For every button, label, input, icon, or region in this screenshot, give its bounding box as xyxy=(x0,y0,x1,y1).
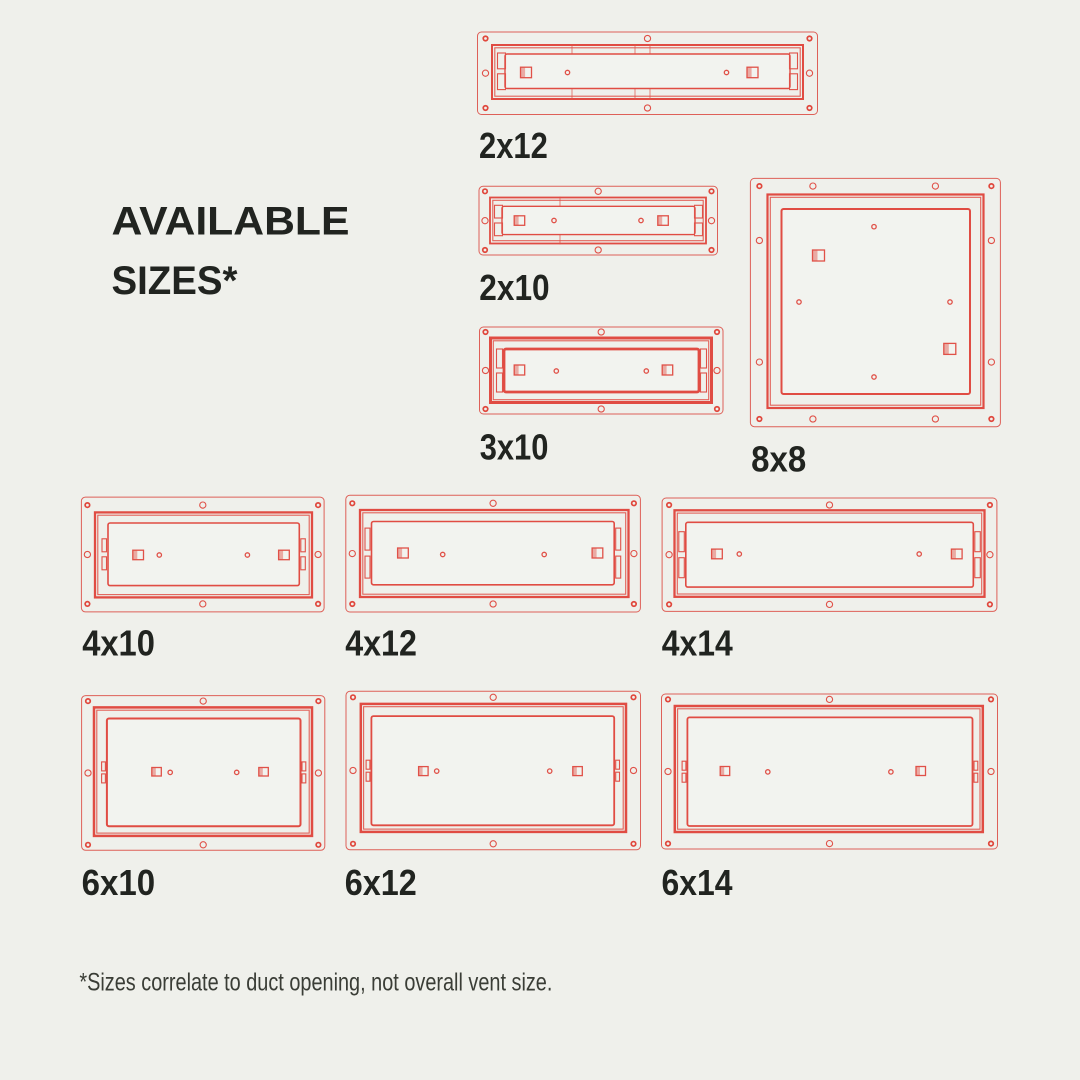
svg-text:SIZES*: SIZES* xyxy=(112,259,238,303)
svg-text:AVAILABLE: AVAILABLE xyxy=(112,200,350,244)
svg-text:2x10: 2x10 xyxy=(479,267,549,308)
svg-text:6x10: 6x10 xyxy=(82,862,156,903)
svg-text:4x14: 4x14 xyxy=(662,622,733,663)
svg-text:4x12: 4x12 xyxy=(345,622,417,663)
svg-text:3x10: 3x10 xyxy=(480,427,549,468)
svg-text:*Sizes correlate to duct openi: *Sizes correlate to duct opening, not ov… xyxy=(79,969,552,997)
svg-text:6x14: 6x14 xyxy=(662,862,733,903)
svg-text:2x12: 2x12 xyxy=(479,125,548,166)
svg-text:6x12: 6x12 xyxy=(345,862,417,903)
svg-text:4x10: 4x10 xyxy=(82,622,155,663)
svg-text:8x8: 8x8 xyxy=(751,439,806,480)
